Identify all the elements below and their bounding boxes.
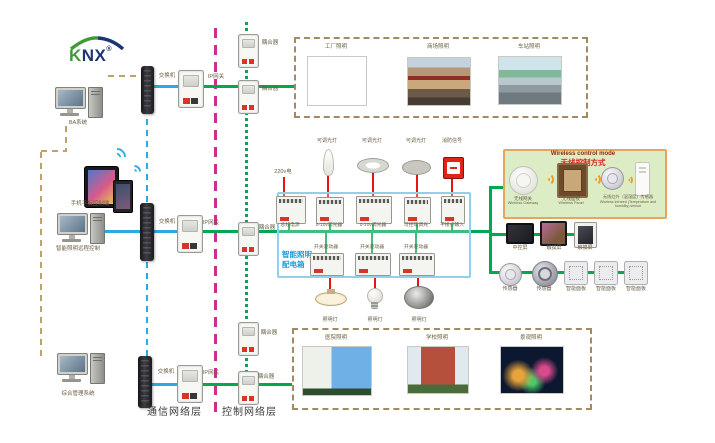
switch-actuator-1 xyxy=(310,253,344,276)
switch-label: 交换机 xyxy=(154,369,178,375)
screen-label: 触摸屏 xyxy=(539,246,569,252)
line-coupler-2 xyxy=(238,80,259,114)
module-label: 可控硅调光 xyxy=(396,223,436,229)
dimmable-lamp-label: 可调光灯 xyxy=(403,139,429,145)
distribution-panel-title: 智能照明 配电箱 xyxy=(282,250,312,270)
sensor-label: 传感器 xyxy=(530,287,558,293)
mgmt-link-vertical-lower xyxy=(40,152,42,358)
wifi-icon xyxy=(125,162,143,180)
dimmer-module-1 xyxy=(316,197,344,224)
sensor-icon xyxy=(499,263,522,286)
coupler-label: 耦合器 xyxy=(258,40,282,46)
mobile-control-label: 手机平板控制端 xyxy=(50,201,130,207)
monitor-base xyxy=(60,113,79,116)
wireless-sensor-label: 无线红外（温湿度）传感器 Wireless infrared (Temperat… xyxy=(595,195,661,208)
touch-screen-icon xyxy=(540,221,567,246)
switch-label: 交换机 xyxy=(155,219,179,225)
wifi-icon xyxy=(541,173,554,186)
panel-title-line1: 智能照明 xyxy=(282,250,312,260)
dimmable-lamp-label: 可调光灯 xyxy=(314,139,340,145)
module-label: 0-10v调光器 xyxy=(309,223,349,229)
knx-logo-k: K xyxy=(69,46,82,65)
module-label: 总线电源 xyxy=(270,223,310,229)
smart-panel-label: 智能面板 xyxy=(561,287,591,293)
computer-tower xyxy=(90,213,105,244)
scene-label: 学校照明 xyxy=(407,335,467,341)
candle-bulb-icon xyxy=(323,149,334,176)
sensor-label: 传感器 xyxy=(496,287,524,293)
dimmable-lamp-label: 可调光灯 xyxy=(359,139,385,145)
line-coupler-1 xyxy=(238,34,259,68)
module-label: 干接点输入 xyxy=(436,223,468,229)
wireless-panel-label: 无线面板 Wireless Panel xyxy=(549,196,593,206)
ip-gateway-label: IP网关 xyxy=(198,370,224,376)
bulb-icon xyxy=(367,288,382,310)
monitor xyxy=(57,353,88,375)
monitor-base xyxy=(62,239,81,242)
wireless-panel-icon xyxy=(557,163,588,198)
wireless-gateway-label: 无线网关 Wireless Gateway xyxy=(500,196,546,206)
lamp-label: 照明灯 xyxy=(317,318,343,324)
landscape-photo xyxy=(500,346,564,394)
ceiling-light-icon xyxy=(315,292,347,306)
management-computer xyxy=(57,353,107,391)
diagram-canvas: KNX® BA系统 手机平板控制端 智能照明远程控制 综合管理系统 交换机 IP… xyxy=(0,0,715,443)
lighting-control-label: 智能照明远程控制 xyxy=(46,246,110,252)
network-switch-mid xyxy=(140,203,154,261)
wireless-remote-icon xyxy=(635,162,650,196)
scene-label: 商场照明 xyxy=(408,44,468,50)
smart-panel-icon xyxy=(624,261,648,285)
wifi-icon xyxy=(588,173,601,186)
central-screen-icon xyxy=(506,223,534,244)
line-coupler-4 xyxy=(238,322,259,356)
switch-actuator-3 xyxy=(399,253,435,276)
ba-system-label: BA系统 xyxy=(48,120,108,126)
actuator-label: 开关驱动器 xyxy=(395,245,437,251)
ethernet-line-top xyxy=(154,85,180,88)
ethernet-line-mid xyxy=(99,230,179,233)
wifi-icon xyxy=(623,175,633,185)
network-switch-bottom xyxy=(138,356,152,408)
smart-panel-icon xyxy=(564,261,588,285)
screen-label: 中控屏 xyxy=(504,246,536,252)
screen-label: 触摸屏 xyxy=(571,246,599,252)
bus-psu-module xyxy=(276,196,306,224)
scene-label: 医院照明 xyxy=(306,335,366,341)
power-input-label: 220v电 xyxy=(268,169,298,175)
computer-tower xyxy=(90,353,105,384)
sensor-icon xyxy=(532,261,558,287)
knx-logo-text: KNX® xyxy=(69,46,112,66)
label-en: Wireless Panel xyxy=(549,201,593,205)
ip-gateway-label: IP网关 xyxy=(203,74,229,80)
scene-label: 景观照明 xyxy=(501,335,561,341)
scr-dimmer-module xyxy=(404,197,431,224)
panel-title-line2: 配电箱 xyxy=(282,260,312,270)
mall-photo xyxy=(407,57,471,106)
communication-layer-label: 通信网络层 xyxy=(147,403,202,418)
mgmt-link-elbow xyxy=(41,150,67,152)
monitor-base xyxy=(62,379,81,382)
wireless-sensor-round-icon xyxy=(601,167,624,190)
mgmt-link-vertical-upper xyxy=(65,126,67,152)
module-label: 0-10v调光器 xyxy=(353,223,393,229)
control-layer-label: 控制网络层 xyxy=(222,403,277,418)
downlight-icon xyxy=(357,158,389,173)
coupler-label: 耦合器 xyxy=(257,330,281,336)
coupler-label: 耦合器 xyxy=(254,374,278,380)
knx-bus-right-vertical xyxy=(489,186,492,274)
smart-panel-icon xyxy=(594,261,618,285)
lamp-label: 照明灯 xyxy=(362,318,388,324)
network-switch-top xyxy=(141,66,154,114)
label-en: Wireless Gateway xyxy=(500,201,546,205)
ethernet-line-bottom xyxy=(150,383,180,386)
registered-mark: ® xyxy=(106,46,112,53)
computer-tower xyxy=(88,87,103,118)
lamp-label: 照明灯 xyxy=(406,318,432,324)
label-en: Wireless infrared (Temperature and humid… xyxy=(595,200,661,208)
dimmer-module-2 xyxy=(356,196,392,224)
fire-signal-label: 消防信号 xyxy=(439,139,465,145)
station-photo xyxy=(498,56,562,105)
scene-label: 工厂照明 xyxy=(306,44,366,50)
monitor xyxy=(57,213,88,235)
factory-photo xyxy=(307,56,367,106)
school-photo xyxy=(407,346,469,394)
mgmt-link-top-horizontal xyxy=(108,75,144,77)
management-system-label: 综合管理系统 xyxy=(43,391,113,397)
actuator-label: 开关驱动器 xyxy=(351,245,393,251)
fire-alarm-icon xyxy=(443,157,464,179)
smart-panel-label: 智能面板 xyxy=(621,287,651,293)
phone-device xyxy=(113,180,133,213)
dry-contact-module xyxy=(441,196,465,224)
knx-logo-nx: NX xyxy=(82,46,107,65)
monitor xyxy=(55,87,86,109)
coupler-label: 耦合器 xyxy=(258,86,282,92)
ceiling-lamp-icon xyxy=(402,160,431,175)
wireless-gateway-icon xyxy=(509,166,538,195)
scene-label: 车站照明 xyxy=(499,44,559,50)
smart-panel-label: 智能面板 xyxy=(591,287,621,293)
spotlight-icon xyxy=(404,286,434,309)
switch-actuator-2 xyxy=(355,253,391,276)
ip-gateway-top xyxy=(178,70,204,108)
hospital-photo xyxy=(302,346,372,396)
actuator-label: 开关驱动器 xyxy=(305,245,347,251)
ip-gateway-label: IP网关 xyxy=(198,220,224,226)
switch-label: 交换机 xyxy=(155,73,179,79)
